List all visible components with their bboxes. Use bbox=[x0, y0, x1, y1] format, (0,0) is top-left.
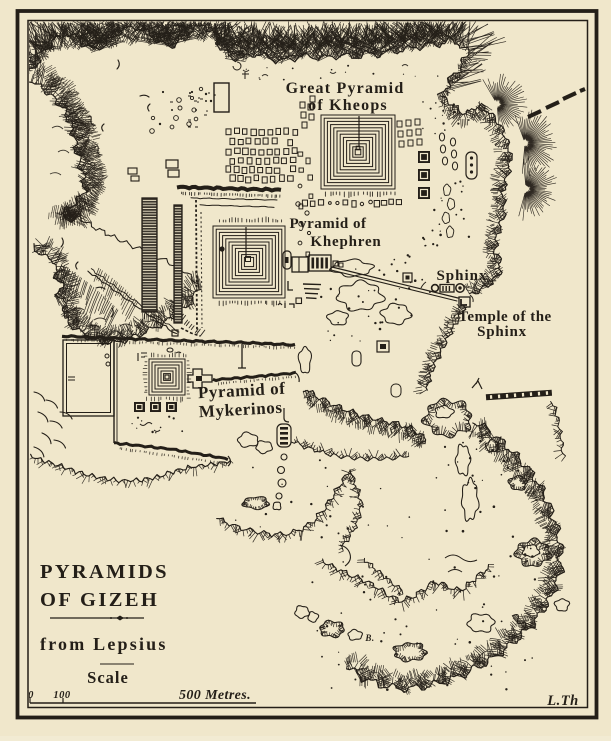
svg-text:Khephren: Khephren bbox=[310, 234, 381, 250]
svg-text:OF GIZEH: OF GIZEH bbox=[40, 589, 159, 611]
svg-text:100: 100 bbox=[53, 690, 71, 701]
svg-text:PYRAMIDS: PYRAMIDS bbox=[40, 561, 169, 583]
svg-text:0: 0 bbox=[28, 690, 34, 701]
svg-text:Temple of the: Temple of the bbox=[458, 309, 551, 325]
svg-text:Sphinx: Sphinx bbox=[477, 324, 527, 340]
svg-text:Sphinx: Sphinx bbox=[436, 268, 487, 284]
svg-text:Great Pyramid: Great Pyramid bbox=[286, 80, 405, 97]
svg-text:from Lepsius: from Lepsius bbox=[40, 634, 168, 654]
svg-text:B.: B. bbox=[364, 633, 374, 643]
svg-text:L.Th: L.Th bbox=[546, 693, 578, 709]
svg-text:Scale: Scale bbox=[87, 668, 129, 687]
svg-text:500 Metres.: 500 Metres. bbox=[179, 688, 251, 703]
svg-text:of Kheops: of Kheops bbox=[308, 97, 388, 114]
svg-text:Pyramid of: Pyramid of bbox=[289, 216, 367, 232]
